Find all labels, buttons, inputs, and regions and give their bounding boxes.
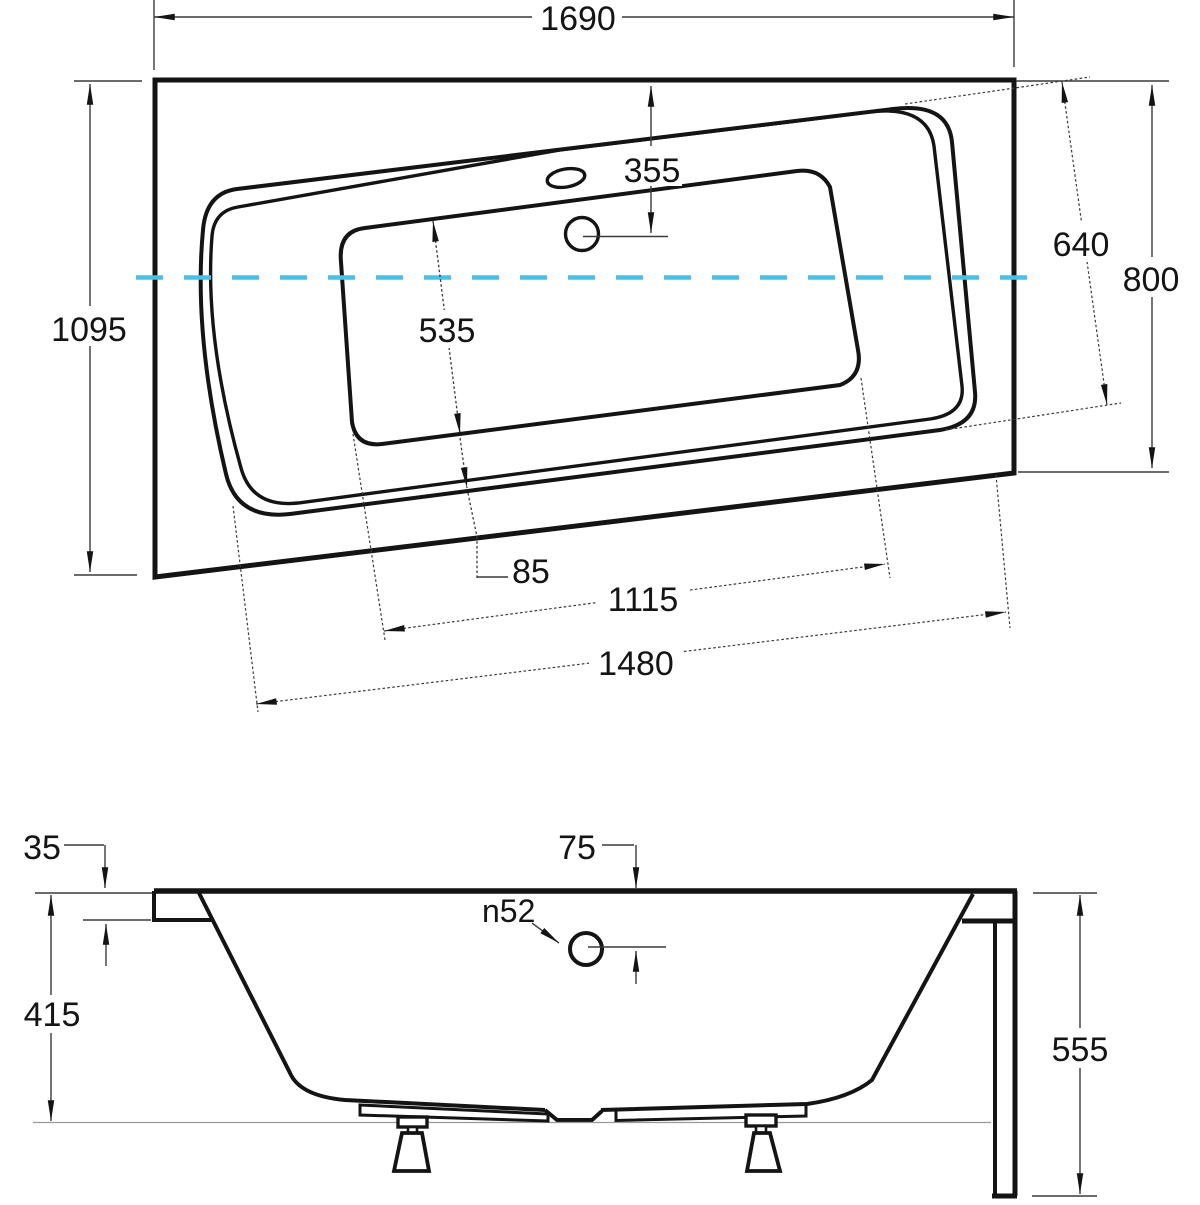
svg-text:640: 640	[1053, 226, 1110, 264]
svg-text:35: 35	[23, 829, 61, 867]
svg-text:415: 415	[24, 996, 81, 1034]
svg-text:1095: 1095	[51, 311, 127, 349]
svg-text:1115: 1115	[608, 581, 679, 619]
svg-text:555: 555	[1052, 1031, 1109, 1069]
svg-text:1480: 1480	[598, 645, 674, 683]
svg-text:n52: n52	[482, 893, 535, 929]
svg-text:355: 355	[624, 152, 681, 190]
svg-text:75: 75	[558, 829, 596, 867]
svg-text:535: 535	[419, 312, 476, 350]
svg-text:1690: 1690	[540, 0, 616, 38]
svg-text:800: 800	[1123, 261, 1180, 299]
svg-text:85: 85	[512, 553, 550, 591]
